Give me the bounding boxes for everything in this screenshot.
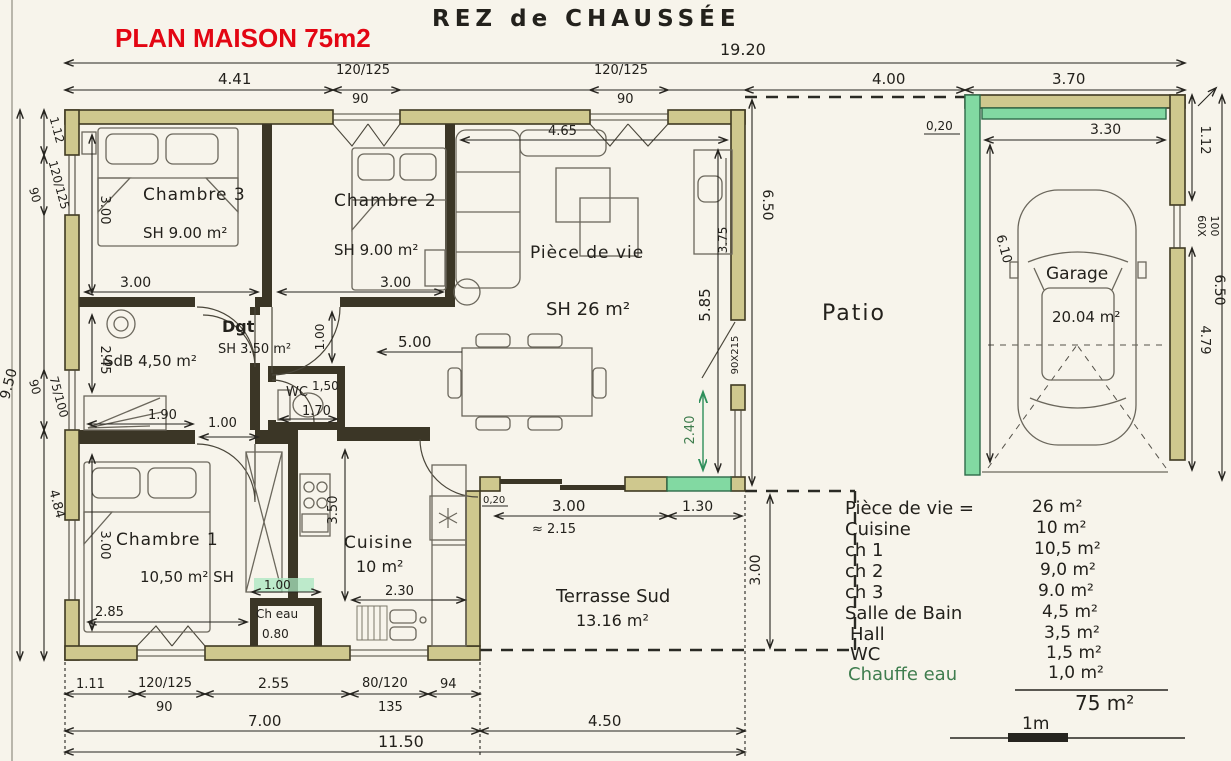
legend-value-6: 3,5 m² [1044,623,1100,643]
bay-window-sill [667,477,731,491]
legend-value-8: 1,0 m² [1048,663,1104,683]
legend-label-4: ch 3 [845,582,883,603]
label-garage: Garage [1046,264,1108,284]
dim-cuisine-350: 3.50 [326,496,341,525]
dim-terr-130: 1.30 [682,499,713,515]
label-cuisine: Cuisine [344,533,413,553]
sliding-door-panel [560,485,625,490]
dim-cheau-080: 0.80 [262,627,289,641]
dim-garage-height: 6.10 [992,233,1014,265]
legend-total: 75 m² [1075,691,1134,715]
legend-label-6: Hall [850,624,885,645]
area-chambre3: SH 9.00 m² [143,224,227,242]
floor-title: REZ de CHAUSSÉE [432,4,741,32]
area-chambre1: 10,50 m² SH [140,568,234,586]
dim-left-window1-sub: 90 [26,186,43,204]
dim-bot-94: 94 [440,677,457,692]
dim-overall-width: 19.20 [720,40,766,59]
legend-label-1: Cuisine [845,519,911,540]
dim-330: 3.30 [1090,122,1121,138]
dim-bot-255: 2.55 [258,676,289,692]
dim-patio-650: 6.50 [759,189,775,220]
terrasse-outline [480,491,855,650]
dim-pdv-240: 2.40 [683,416,698,445]
dim-wc-100: 1.00 [313,324,327,351]
dim-ch3-w: 3.00 [120,275,151,291]
label-chambre1: Chambre 1 [116,530,219,550]
plan-title: PLAN MAISON 75m2 [115,23,371,53]
chambre2-furniture [352,148,446,290]
floor-plan-page: PLAN MAISON 75m2 REZ de CHAUSSÉE [0,0,1231,761]
chambre2-door-arc [272,307,340,375]
legend-value-3: 9,0 m² [1040,560,1096,580]
cuisine-door-arc [420,439,478,497]
dim-bot-450: 4.50 [588,712,621,730]
garage-structure [965,95,1185,475]
dim-wc-170: 1.70 [302,404,331,419]
living-furniture [448,130,732,430]
dim-bot-window1-sub: 90 [156,700,173,715]
dim-left-484: 4.84 [45,488,67,520]
legend-label-5: Salle de Bain [845,603,962,624]
area-chambre2: SH 9.00 m² [334,241,418,259]
snowflake-icon [439,508,457,528]
dim-cheau-100: 1.00 [264,578,291,592]
garage-west-wall [965,95,980,475]
dim-400: 4.00 [872,70,905,88]
dim-ch3-h: 3.00 [97,196,112,225]
dim-right-650: 6.50 [1211,274,1227,305]
dim-bot-window1: 120/125 [138,676,192,691]
dim-370: 3.70 [1052,70,1085,88]
legend-value-0: 26 m² [1032,497,1082,517]
dim-terr-215: ≈ 2.15 [532,522,576,537]
dim-right-window-sub: 100 [1208,216,1221,237]
label-terrasse: Terrasse Sud [555,586,670,607]
legend-label-3: ch 2 [845,561,883,582]
legend-label-0: Pièce de vie = [845,498,974,519]
area-dgt: SH 3.50 m² [218,342,291,357]
dim-top-window1-sub: 90 [352,92,369,107]
legend-value-5: 4,5 m² [1042,602,1098,622]
dim-dgt-100: 1.00 [208,416,237,431]
dim-terr-020: 0,20 [483,495,505,506]
dim-cuisine-230: 2.30 [385,584,414,599]
dim-pdv-465: 4.65 [548,124,577,139]
dims-top: 19.20 4.41 120/125 90 120/125 90 4.00 3.… [65,40,1216,140]
label-dgt: Dgt [222,317,255,336]
dim-left-112: 1.12 [47,115,67,144]
dim-top-window1: 120/125 [336,63,390,78]
dim-terr-300: 3.00 [552,497,585,515]
legend-label-7: WC [850,644,880,665]
dim-ch2-w: 3.00 [380,275,411,291]
legend-label-8: Chauffe eau [848,664,957,685]
scale-bar-segment [1008,733,1068,742]
dim-left-window1: 120/125 [46,159,72,211]
area-wc: 1,50 [312,379,339,393]
legend: Pièce de vie = 26 m² Cuisine 10 m² ch 1 … [845,497,1185,742]
dim-left-window2: 75/100 [47,375,71,419]
dim-right-479: 4.79 [1197,326,1212,355]
label-chambre3: Chambre 3 [143,185,246,205]
garage-window-sill [982,108,1166,119]
label-piece-de-vie: Pièce de vie [530,243,644,263]
floor-plan-svg: PLAN MAISON 75m2 REZ de CHAUSSÉE [0,0,1231,761]
dim-left-window2-sub: 90 [26,378,43,396]
dim-bot-window2-sub: 135 [378,700,403,715]
label-patio: Patio [822,301,886,326]
dims-left: 9.50 1.12 120/125 90 75/100 90 4.84 [0,110,72,660]
area-garage: 20.04 m² [1052,308,1120,326]
dim-pdv-585: 5.85 [696,288,714,321]
label-sdb: SdB 4,50 m² [104,352,197,370]
dim-sdb-190: 1.90 [148,408,177,423]
area-terrasse: 13.16 m² [576,611,649,630]
label-wc: WC [286,385,308,400]
label-chambre2: Chambre 2 [334,191,437,211]
kitchen-fixtures [300,465,466,646]
dim-bot-700: 7.00 [248,712,281,730]
area-cuisine: 10 m² [356,557,403,576]
legend-value-2: 10,5 m² [1034,539,1101,559]
dim-top-window2-sub: 90 [617,92,634,107]
label-chauffe-eau: Ch eau [256,607,298,621]
dim-bot-1150: 11.50 [378,732,424,751]
legend-label-2: ch 1 [845,540,883,561]
dim-right-window: 60X [1195,215,1208,237]
dim-right-112: 1.12 [1197,126,1212,155]
dim-020: 0,20 [926,119,953,133]
dim-pdv-375: 3.75 [716,227,730,254]
area-piece-de-vie: SH 26 m² [546,299,630,320]
dim-terr-300r: 3.00 [748,554,764,585]
dim-left-950: 9.50 [0,367,21,401]
dim-bot-111: 1.11 [76,677,105,692]
dim-top-window2: 120/125 [594,63,648,78]
dim-pdv-500: 5.00 [398,333,431,351]
legend-value-4: 9.0 m² [1038,581,1094,601]
scale-label: 1m [1022,714,1049,734]
dim-441: 4.41 [218,70,251,88]
legend-value-7: 1,5 m² [1046,643,1102,663]
dim-ch1-w: 2.85 [95,605,124,620]
sliding-door-panel [500,479,562,484]
legend-value-1: 10 m² [1036,518,1086,538]
dims-right: 1.12 60X 100 4.79 6.50 6.10 6.50 [752,95,1227,485]
dim-ch1-h: 3.00 [97,531,112,560]
dim-bot-window2: 80/120 [362,676,408,691]
dim-pdv-door: 90X215 [730,336,741,375]
